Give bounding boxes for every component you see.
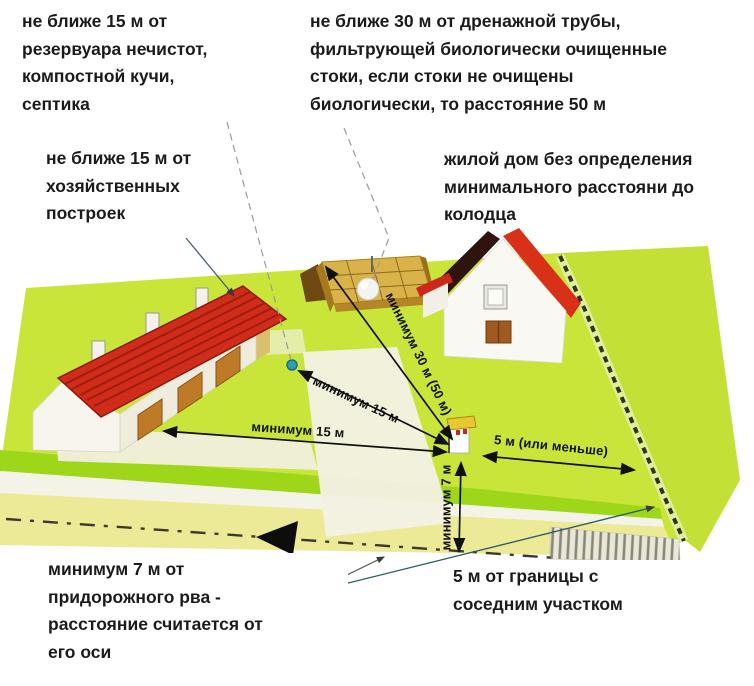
label-well-to-ditch: минимум 7 м	[439, 460, 454, 556]
note-cesspool-distance: не ближе 15 м от резервуара нечистот, ко…	[22, 8, 262, 119]
house-upper-window-pane	[488, 289, 503, 305]
note-neighbor-boundary: 5 м от границы с соседним участком	[443, 560, 713, 624]
well-placement-diagram: минимум 15 м минимум 15 м минимум 30 м (…	[0, 0, 754, 686]
well-cap	[447, 416, 476, 430]
septic-tank-sphere	[357, 278, 379, 300]
note-outbuildings-distance: не ближе 15 м от хозяйственных построек	[46, 145, 266, 228]
note-drainpipe-distance: не ближе 30 м от дренажной трубы, фильтр…	[310, 8, 730, 119]
note-ditch-distance: минимум 7 м от придорожного рва - рассто…	[38, 553, 348, 673]
note-house-no-minimum: жилой дом без определения минимального р…	[444, 146, 744, 229]
septic-tank-highlight	[360, 281, 368, 289]
well-cap-mark	[463, 429, 467, 434]
well-cap-mark	[456, 430, 460, 435]
cesspool-marker	[287, 360, 297, 370]
